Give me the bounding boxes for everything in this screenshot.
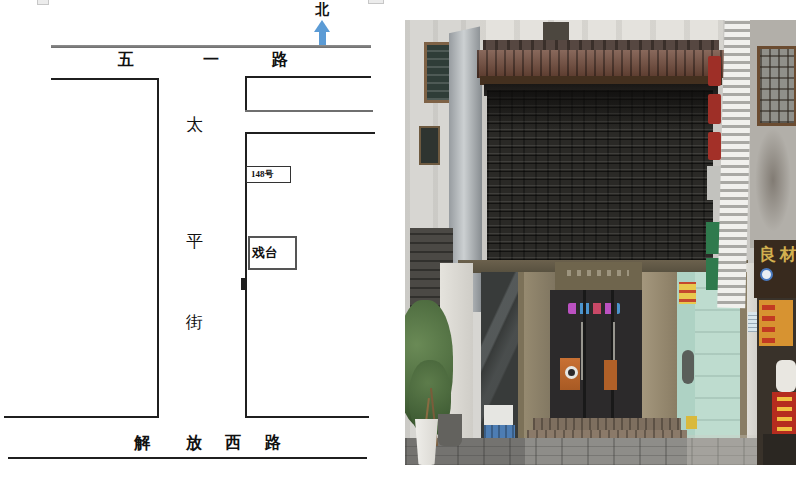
right-block1-left-line [245, 76, 247, 112]
orange-menu-sign [759, 300, 793, 346]
interior-poster-right [604, 360, 617, 390]
wuyi-road-char-1: 五 [118, 50, 134, 71]
address-label: 148号 [251, 169, 274, 179]
red-plaque-1 [708, 56, 721, 86]
stage-tick-mark [241, 278, 245, 290]
right-block1-top-line [245, 76, 371, 78]
upper-wall-window [543, 22, 569, 40]
wuyi-road-line [51, 45, 371, 48]
north-label: 北 [315, 1, 329, 19]
taiping-street-char-3: 街 [186, 311, 203, 334]
address-box: 148号 [246, 166, 291, 183]
right-block2-bottom-line [245, 416, 369, 418]
storage-box-white [484, 405, 513, 425]
left-block-right-line [157, 78, 159, 418]
silver-plaque [707, 166, 721, 200]
door-handle-left[interactable] [581, 322, 583, 380]
neighbor-shop-sign: 良材 [754, 240, 796, 298]
wuyi-road-char-2: 一 [203, 50, 219, 71]
right-block2-top-line [245, 132, 375, 134]
tea-sign-yellow [679, 282, 696, 304]
taiping-street-char-1: 太 [186, 113, 203, 136]
right-block1-bottom-line [245, 110, 373, 112]
neighbor-doorway [763, 434, 796, 465]
door-frame-left [583, 290, 586, 430]
jiefang-road-char-1: 解 [134, 433, 150, 454]
taiping-street-char-2: 平 [186, 230, 203, 253]
neighbor-sign-text: 良材 [759, 243, 796, 266]
red-menu-sign [772, 392, 796, 434]
wall-stain [755, 128, 791, 232]
left-block-bottom-line [4, 416, 159, 418]
mannequin-figure [682, 350, 694, 384]
north-arrow-shaft [319, 31, 326, 46]
left-block-top-line [51, 78, 159, 80]
step-top [533, 418, 681, 430]
red-plaque-3 [708, 132, 721, 160]
stage-box: 戏台 [248, 236, 297, 270]
jiefang-road-char-2: 放 [186, 433, 202, 454]
right-building-lattice-window [757, 46, 796, 126]
street-map-diagram: 北 五 一 路 148号 戏台 太 平 街 解 [0, 0, 404, 479]
jiefang-road-line [8, 457, 367, 459]
interior-logo-circle [565, 366, 578, 379]
white-sacks [776, 360, 796, 392]
orange-menu-text-lines [762, 303, 775, 343]
storefront-photo: 良材 [405, 20, 796, 465]
small-yellow-sign [686, 416, 697, 429]
crop-fragment-right [368, 0, 384, 4]
jiefang-road-char-4: 路 [265, 433, 281, 454]
stage-label: 戏台 [252, 245, 278, 260]
page: 北 五 一 路 148号 戏台 太 平 街 解 [0, 0, 804, 479]
door-header-lettering [567, 270, 629, 276]
neighbor-sign-logo-circle [760, 268, 773, 281]
dark-pot [438, 414, 462, 446]
roof-tiles [477, 50, 725, 78]
wuyi-road-char-3: 路 [272, 50, 288, 71]
left-building-window-lower [419, 126, 440, 165]
red-menu-text-lines [777, 395, 792, 431]
red-plaque-2 [708, 94, 721, 124]
door-header-sign [555, 262, 642, 290]
lattice-top-shadow [487, 90, 713, 130]
jiefang-road-char-3: 西 [225, 433, 241, 454]
crop-fragment-left [37, 0, 49, 5]
